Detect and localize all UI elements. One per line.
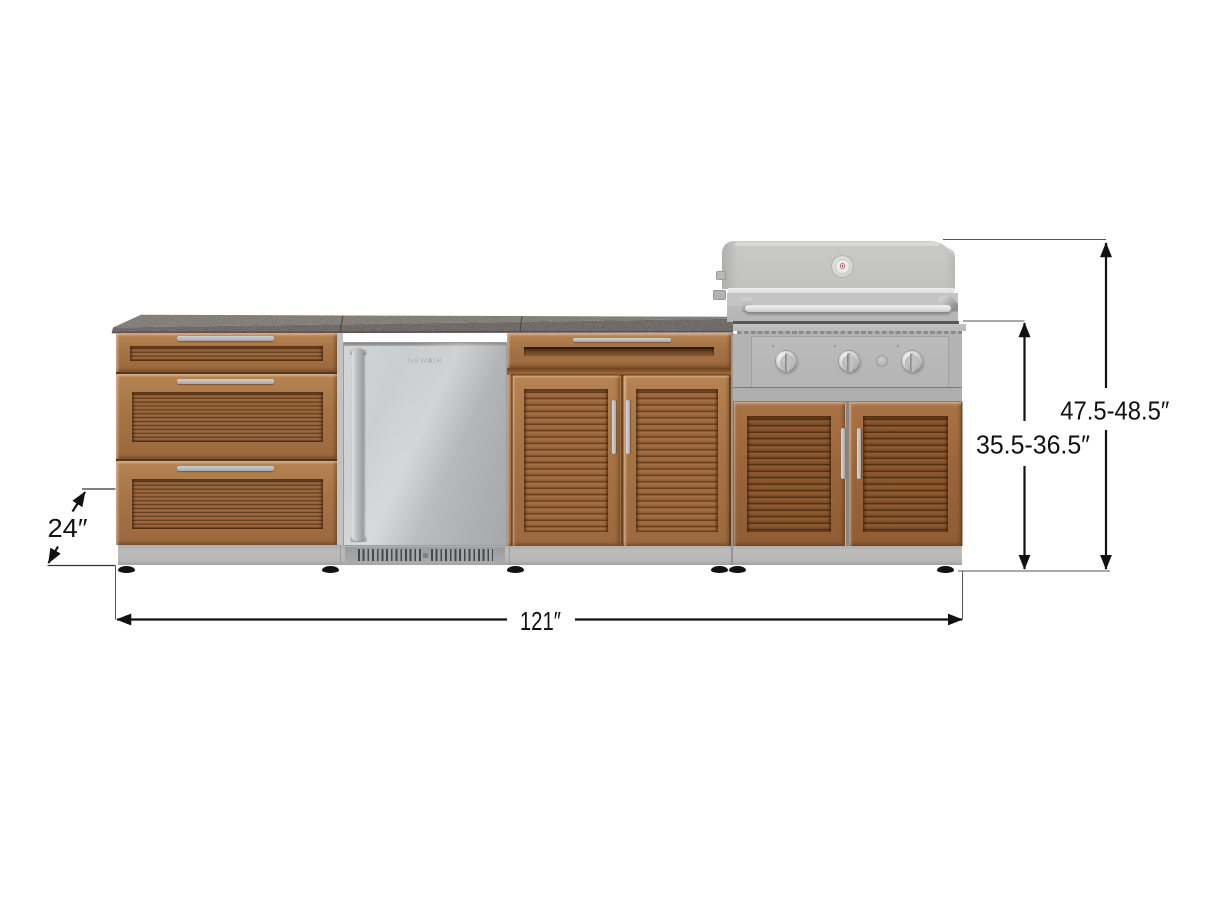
svg-text:121″: 121″ — [520, 606, 561, 636]
svg-text:24″: 24″ — [48, 513, 88, 543]
svg-text:35.5-36.5″: 35.5-36.5″ — [976, 430, 1090, 460]
svg-text:47.5-48.5″: 47.5-48.5″ — [1060, 396, 1169, 426]
